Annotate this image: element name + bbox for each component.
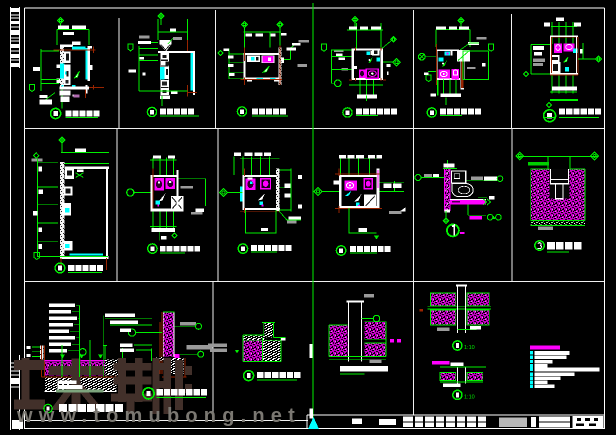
- svg-text:1:10: 1:10: [464, 394, 475, 400]
- svg-text:www.tomubong.net: www.tomubong.net: [16, 405, 301, 427]
- svg-text:1:10: 1:10: [464, 345, 475, 351]
